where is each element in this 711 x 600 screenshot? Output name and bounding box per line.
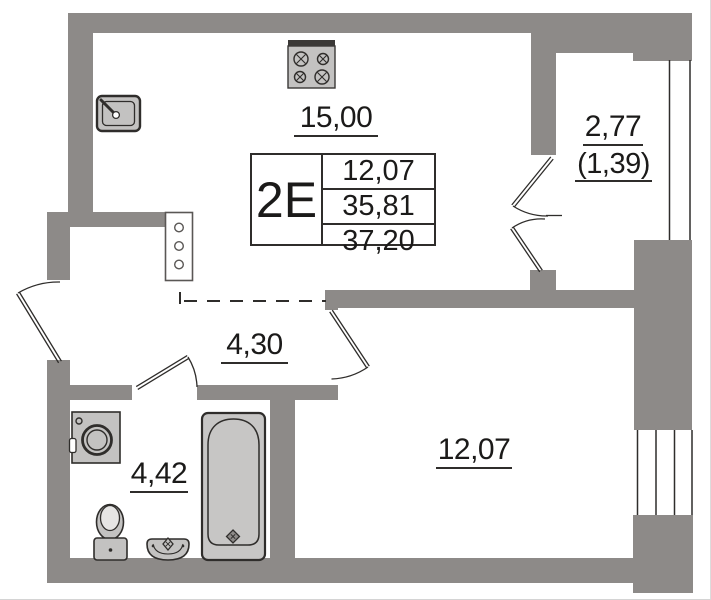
balcony-glazing bbox=[670, 60, 691, 240]
bedroom-window bbox=[638, 430, 693, 515]
unit-total-area: 37,20 bbox=[323, 223, 434, 258]
unit-living-area: 12,07 bbox=[323, 155, 434, 188]
toilet-icon bbox=[94, 505, 127, 561]
kitchen-sink-icon bbox=[97, 96, 140, 131]
kitchen-area-label: 15,00 bbox=[294, 102, 378, 137]
entry-door bbox=[17, 282, 62, 363]
bathroom-area-label: 4,42 bbox=[130, 458, 188, 493]
bathroom-door bbox=[136, 356, 197, 390]
floor-plan-canvas: 2Е 12,07 35,81 37,20 15,00 4,30 4,42 12,… bbox=[0, 0, 711, 600]
hallway-area-label: 4,30 bbox=[221, 329, 288, 364]
unit-areas: 12,07 35,81 37,20 bbox=[323, 155, 434, 244]
washing-machine-icon bbox=[70, 412, 121, 463]
balcony-area-label: 2,77 bbox=[583, 111, 643, 146]
stove-icon bbox=[288, 40, 335, 88]
riser-panel-icon bbox=[166, 213, 193, 281]
bedroom-door bbox=[330, 310, 370, 379]
balcony-door bbox=[511, 157, 562, 272]
unit-info-table: 2Е 12,07 35,81 37,20 bbox=[250, 153, 436, 246]
unit-type-label: 2Е bbox=[252, 155, 323, 244]
washbasin-icon bbox=[147, 538, 189, 560]
bathtub-icon bbox=[202, 413, 265, 560]
bedroom-area-label: 12,07 bbox=[436, 434, 512, 469]
open-plan-dashed-line bbox=[180, 292, 326, 304]
balcony-reduced-area-label: (1,39) bbox=[575, 149, 652, 182]
unit-area: 35,81 bbox=[323, 188, 434, 223]
